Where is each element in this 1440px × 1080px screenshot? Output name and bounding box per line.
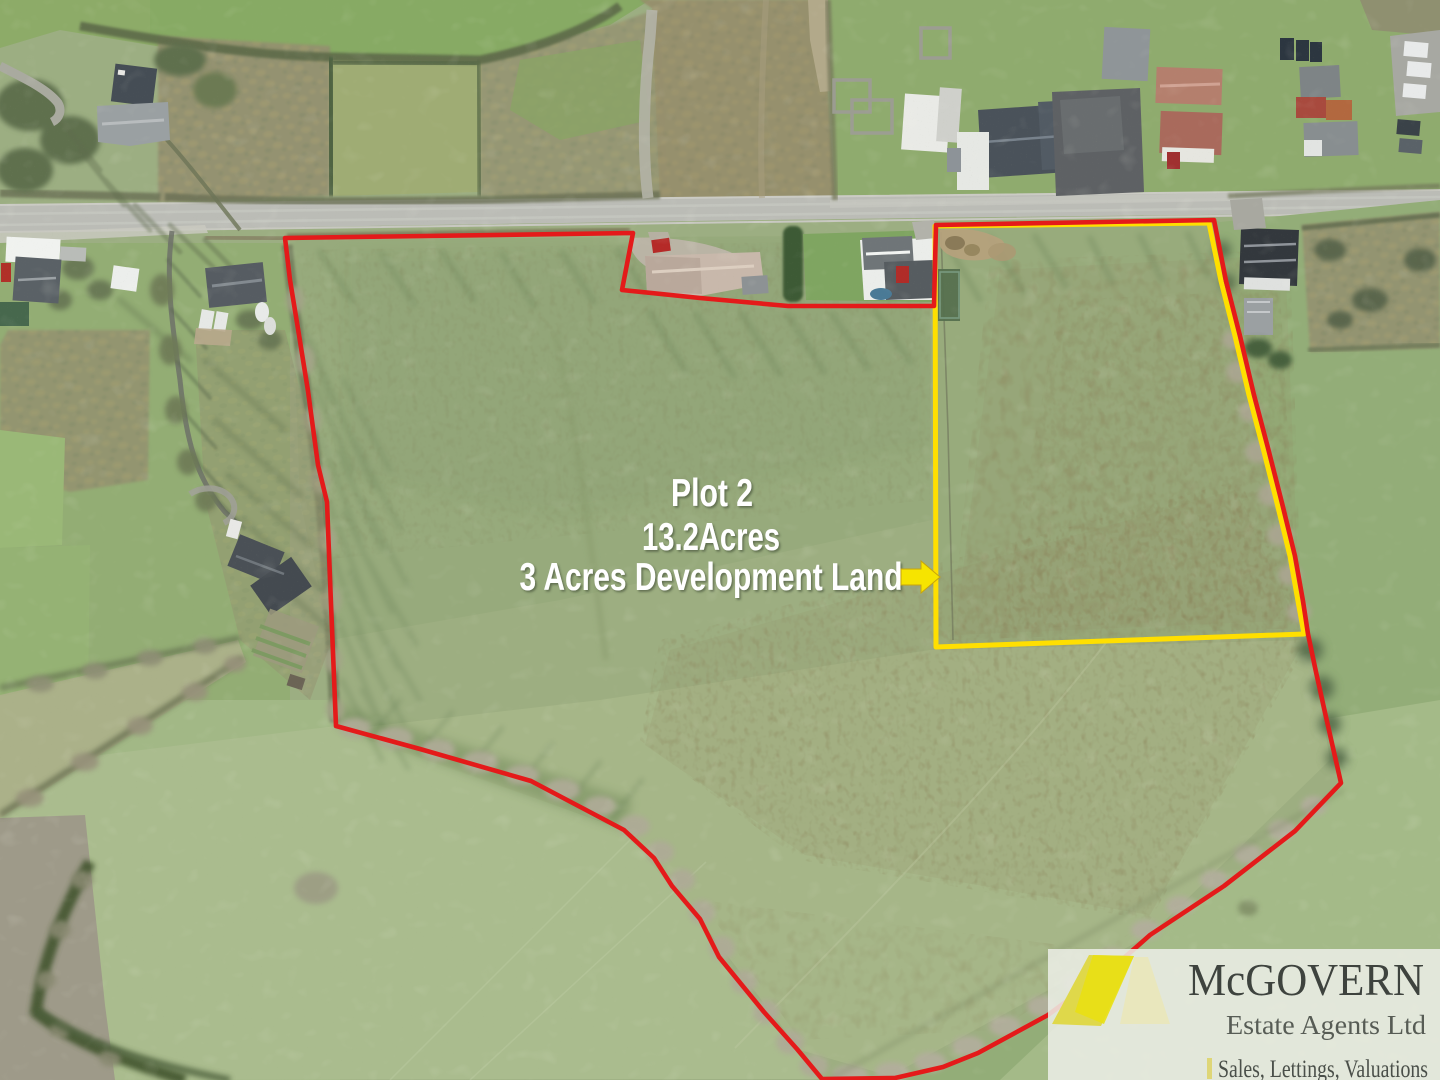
svg-text:McGOVERN: McGOVERN — [1188, 954, 1424, 1005]
svg-text:Estate Agents Ltd: Estate Agents Ltd — [1226, 1010, 1427, 1040]
svg-text:Plot 2: Plot 2 — [671, 472, 753, 515]
svg-text:13.2Acres: 13.2Acres — [642, 516, 780, 559]
svg-text:Sales, Lettings, Valuations: Sales, Lettings, Valuations — [1218, 1056, 1428, 1080]
svg-text:3 Acres Development Land: 3 Acres Development Land — [520, 556, 903, 599]
